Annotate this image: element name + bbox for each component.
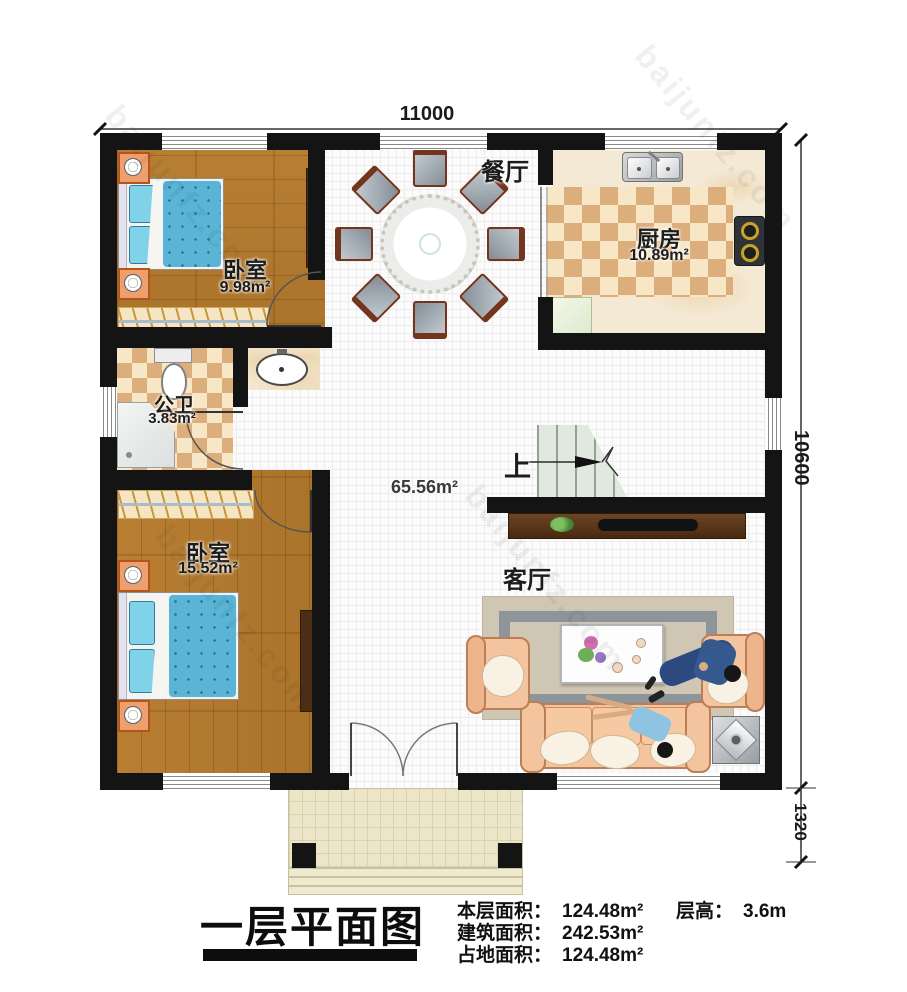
sink-drain-icon: [666, 167, 670, 171]
wall: [100, 470, 252, 490]
bed-pillow: [129, 601, 155, 645]
side-table: [712, 716, 760, 764]
dimension-right: 10600: [789, 430, 812, 486]
window: [380, 133, 487, 150]
kitchen-sink: [622, 152, 683, 182]
tv-feature-wall: [487, 497, 782, 513]
window: [557, 773, 720, 790]
stat-value: 124.48m²: [562, 945, 643, 966]
window: [100, 387, 117, 437]
room-label-living: 客厅: [503, 560, 551, 595]
wall: [308, 150, 325, 280]
dining-chair: [335, 227, 373, 261]
nightstand: [118, 560, 150, 592]
kitchen-stove: [734, 216, 765, 266]
wall: [538, 150, 553, 185]
armchair: [468, 637, 530, 710]
dining-chair: [413, 301, 447, 339]
porch-pillar: [292, 843, 316, 868]
room-area-bedroom2: 15.52m²: [178, 560, 238, 578]
bedroom2-wardrobe: [118, 490, 254, 519]
wall: [100, 133, 117, 790]
shower-drain-icon: [126, 452, 132, 458]
window: [605, 133, 717, 150]
plate-icon: [632, 655, 641, 664]
wall: [312, 470, 330, 773]
coffee-table: [560, 624, 664, 684]
bedroom1-bed: [118, 178, 224, 270]
stat-land-area: 占地面积：124.48m²: [457, 940, 643, 967]
bed-headboard: [119, 179, 127, 269]
stove-burner-icon: [741, 244, 759, 262]
nightstand: [118, 152, 150, 184]
bed-pillow: [129, 649, 155, 693]
stat-floor-height: 层高：3.6m: [676, 896, 786, 923]
floor-plan-canvas: 11000 10600 1320 餐厅 厨房 10.89m² 卧室 9.98m²…: [0, 0, 907, 992]
hall-sink-drain-icon: [279, 367, 284, 372]
stat-label: 层高：: [676, 901, 733, 922]
tv-icon: [598, 519, 698, 531]
wall: [765, 133, 782, 790]
toilet-tank: [154, 348, 192, 363]
hall-sink-faucet-icon: [277, 349, 287, 354]
plan-title: 一层平面图: [200, 893, 425, 955]
porch-steps: [288, 868, 523, 895]
room-area-bedroom1: 9.98m²: [220, 279, 271, 297]
dimension-top: 11000: [400, 103, 455, 126]
bedroom2-bed: [118, 592, 239, 700]
person-hand-icon: [699, 662, 708, 671]
flowers-icon: [578, 648, 594, 662]
plate-icon: [636, 638, 646, 648]
dining-chair: [413, 149, 447, 187]
wall: [538, 297, 553, 335]
room-area-kitchen: 10.89m²: [629, 247, 689, 265]
flowers-icon: [595, 652, 606, 663]
dining-table-center-icon: [419, 233, 441, 255]
window: [765, 398, 782, 450]
armchair-back: [745, 632, 765, 712]
wall: [538, 333, 782, 350]
bed-blanket: [163, 181, 221, 267]
bed-blanket: [169, 595, 236, 697]
lamp-icon: [124, 274, 142, 292]
person-head-icon: [724, 665, 741, 682]
wall: [100, 327, 332, 348]
stove-burner-icon: [741, 222, 759, 240]
nightstand: [118, 268, 150, 300]
stat-label: 占地面积：: [457, 945, 552, 966]
bed-headboard: [119, 593, 127, 699]
room-area-bathroom: 3.83m²: [148, 410, 196, 427]
side-table-knob-icon: [730, 734, 743, 747]
wall: [233, 348, 248, 407]
dining-chair: [487, 227, 525, 261]
hall-area-label: 65.56m²: [391, 477, 458, 498]
kitchen-fridge: [552, 297, 592, 334]
person-head-icon: [657, 742, 673, 758]
lamp-icon: [124, 566, 142, 584]
dimension-bottom-right: 1320: [790, 803, 810, 841]
teacup-icon: [612, 662, 623, 673]
stat-value: 3.6m: [743, 901, 786, 922]
nightstand: [118, 700, 150, 732]
lamp-icon: [124, 706, 142, 724]
window: [162, 133, 267, 150]
plant-icon: [550, 517, 574, 532]
sink-drain-icon: [637, 167, 641, 171]
lamp-icon: [124, 158, 142, 176]
window: [163, 773, 270, 790]
title-underline: [203, 949, 417, 961]
sofa-armrest: [520, 701, 546, 773]
stairs-up-label: 上: [504, 445, 531, 484]
room-label-dining: 餐厅: [481, 152, 529, 187]
entry-porch: [288, 788, 523, 868]
porch-pillar: [498, 843, 522, 868]
